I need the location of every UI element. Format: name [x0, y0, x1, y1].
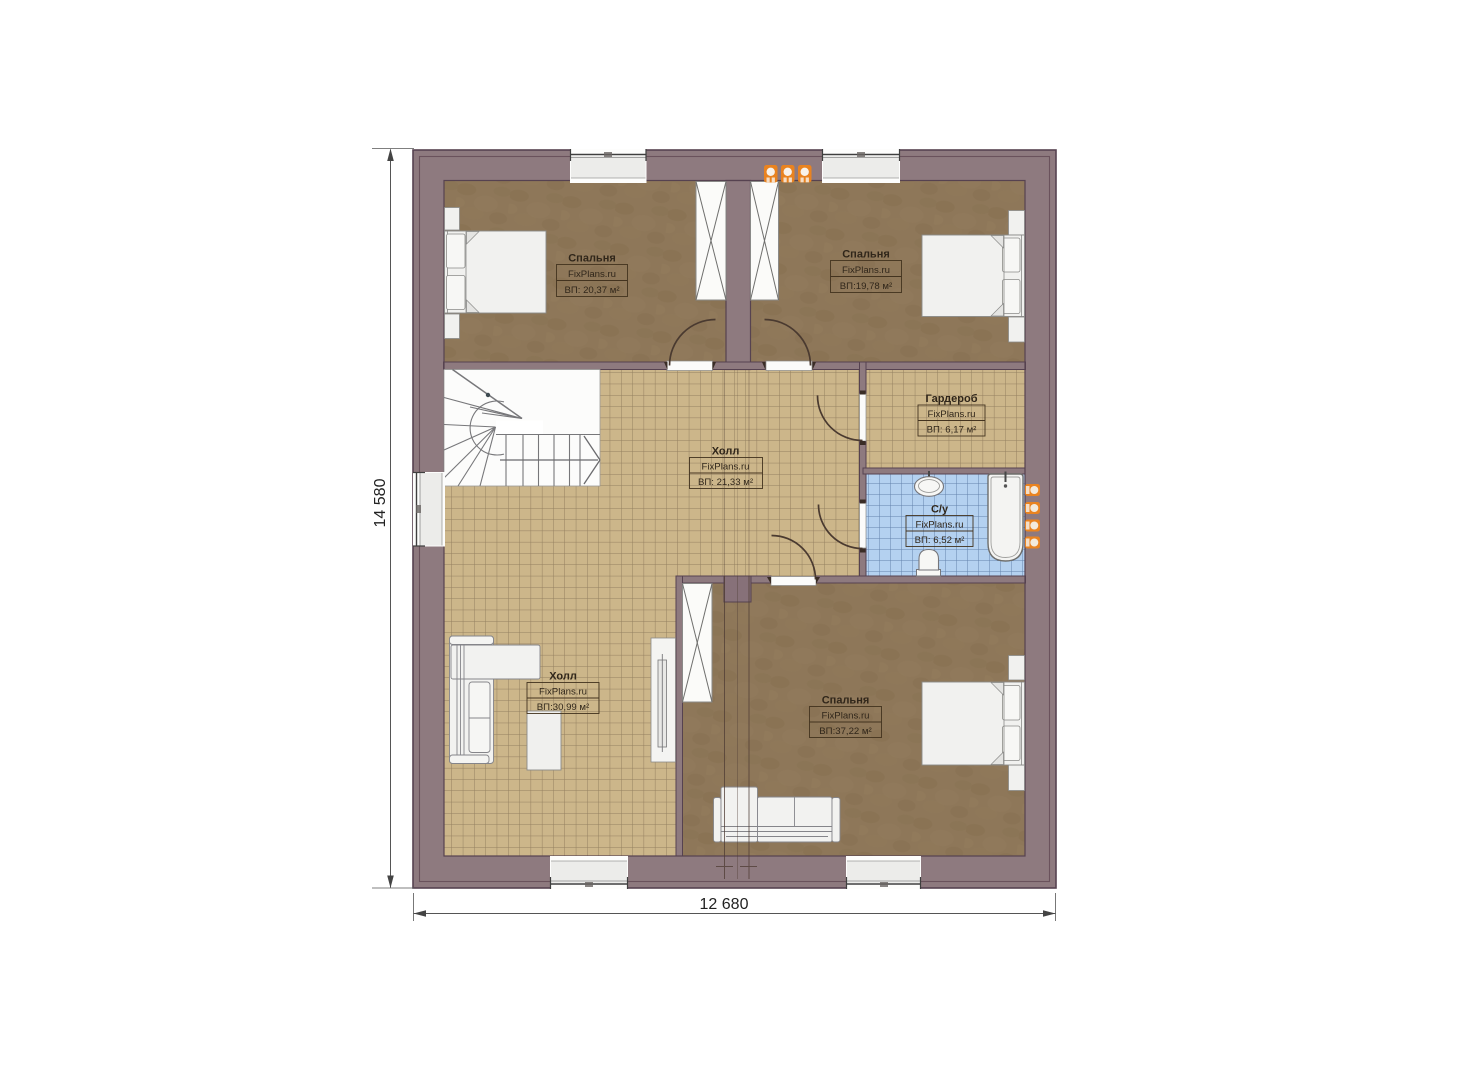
svg-text:ВП:19,78 м²: ВП:19,78 м² [840, 281, 893, 292]
svg-text:12 680: 12 680 [700, 896, 749, 913]
svg-text:ВП: 20,37 м²: ВП: 20,37 м² [564, 285, 620, 296]
svg-text:FixPlans.ru: FixPlans.ru [822, 711, 870, 722]
svg-text:FixPlans.ru: FixPlans.ru [928, 409, 976, 420]
svg-text:FixPlans.ru: FixPlans.ru [702, 462, 750, 473]
svg-text:Холл: Холл [549, 671, 577, 683]
svg-text:Спальня: Спальня [568, 253, 616, 265]
svg-text:Спальня: Спальня [822, 695, 870, 707]
svg-text:FixPlans.ru: FixPlans.ru [842, 265, 890, 276]
svg-text:FixPlans.ru: FixPlans.ru [568, 269, 616, 280]
svg-text:FixPlans.ru: FixPlans.ru [539, 687, 587, 698]
svg-text:ВП: 21,33 м²: ВП: 21,33 м² [698, 477, 754, 488]
svg-text:Холл: Холл [712, 446, 740, 458]
svg-text:14 580: 14 580 [372, 478, 389, 527]
svg-text:ВП: 6,17 м²: ВП: 6,17 м² [927, 425, 978, 436]
svg-text:С/у: С/у [931, 504, 949, 516]
svg-text:ВП: 6,52 м²: ВП: 6,52 м² [915, 535, 966, 546]
svg-text:FixPlans.ru: FixPlans.ru [916, 520, 964, 531]
svg-text:Гардероб: Гардероб [926, 393, 978, 405]
svg-text:ВП:37,22 м²: ВП:37,22 м² [819, 726, 872, 737]
svg-text:Спальня: Спальня [842, 249, 890, 261]
svg-text:ВП:30,99 м²: ВП:30,99 м² [537, 702, 590, 713]
